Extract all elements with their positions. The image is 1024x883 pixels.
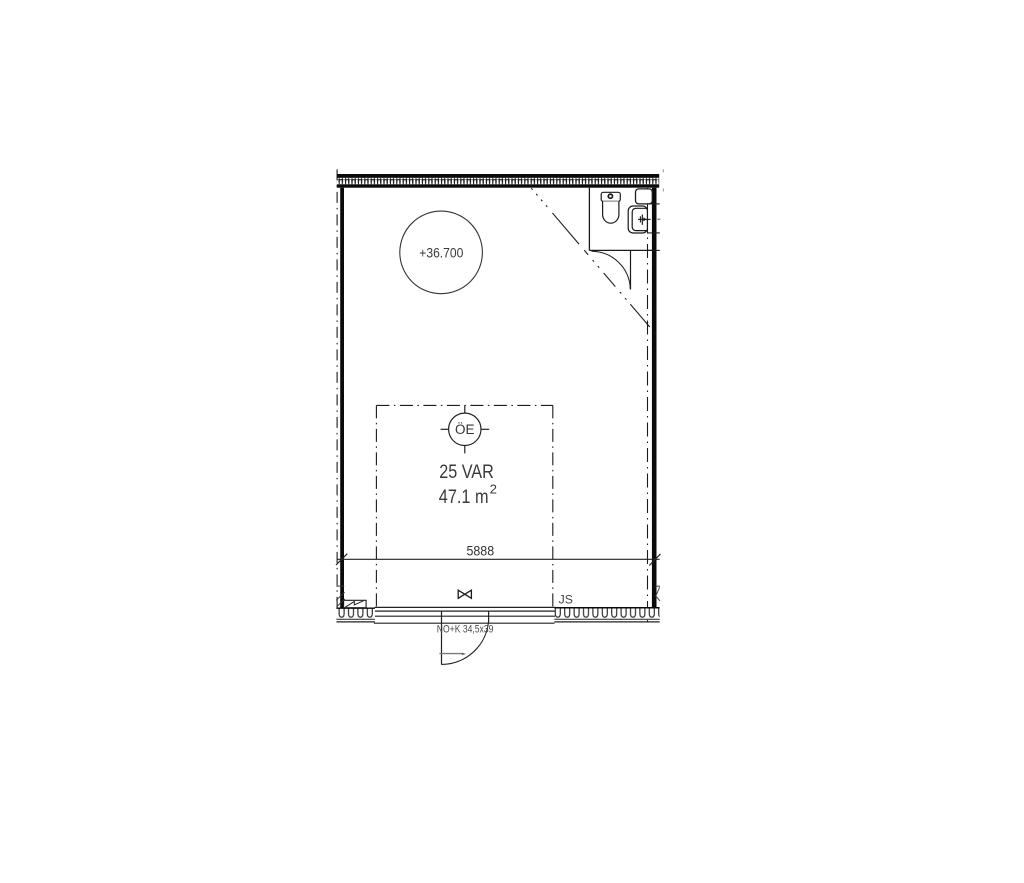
svg-text:ÖE: ÖE bbox=[455, 422, 475, 437]
svg-text:2: 2 bbox=[490, 482, 497, 497]
svg-text:47.1 m: 47.1 m bbox=[439, 486, 489, 508]
svg-text:5888: 5888 bbox=[467, 543, 495, 558]
svg-text:NO+K 34,5x39: NO+K 34,5x39 bbox=[437, 624, 494, 636]
svg-text:JS: JS bbox=[559, 593, 573, 607]
svg-text:25 VAR: 25 VAR bbox=[439, 461, 494, 483]
svg-text:+36.700: +36.700 bbox=[419, 246, 463, 262]
